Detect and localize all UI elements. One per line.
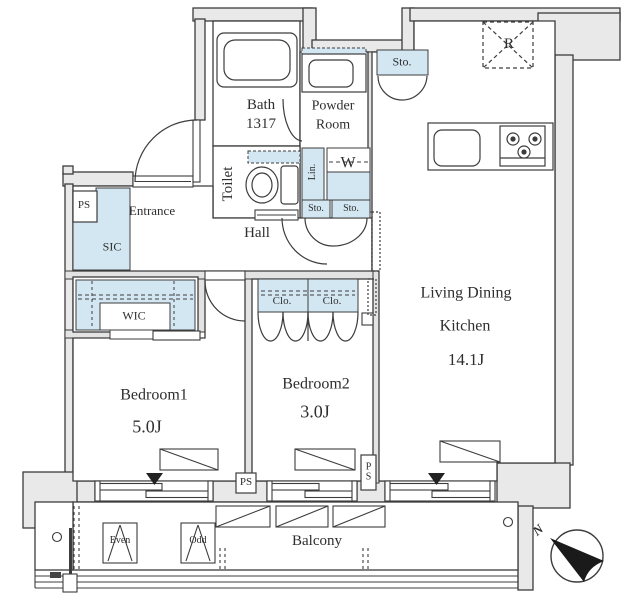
bedroom1-door-sill <box>205 271 245 280</box>
ldk-area <box>372 21 555 481</box>
compass-icon <box>550 530 604 582</box>
hatch-even-label: Even <box>110 536 131 547</box>
linen-label: Lin. <box>308 164 319 180</box>
bedroom1-size-label: 5.0J <box>132 418 162 437</box>
kitchen-counter <box>428 123 553 170</box>
drain-icon <box>504 518 513 527</box>
ldk-window <box>385 481 495 501</box>
bedroom2-label: Bedroom2 <box>282 377 350 394</box>
powder-room-label-line2: Room <box>316 119 350 134</box>
drain-icon <box>53 533 62 542</box>
stove-icon <box>500 126 545 166</box>
sic-label: SIC <box>103 241 122 254</box>
balcony-label: Balcony <box>292 534 342 550</box>
toilet-cabinet <box>248 151 300 163</box>
toilet-icon <box>246 166 298 204</box>
entrance-door-leaf <box>193 120 200 182</box>
balcony-rail <box>35 570 518 588</box>
hall-label: Hall <box>244 226 270 242</box>
bath-label: Bath <box>247 98 275 114</box>
toilet-label: Toilet <box>221 167 237 202</box>
hatch-odd-label: Odd <box>189 536 206 547</box>
wic-label: WIC <box>122 310 145 323</box>
entrance-door-arc <box>135 120 197 182</box>
ldk-label-line1: Living Dining <box>420 286 511 303</box>
sto-upper-label: Sto. <box>392 56 411 69</box>
ldk-label-line2: Kitchen <box>440 319 491 336</box>
floor-plan-drawing <box>0 0 640 613</box>
floor-plan: Bath 1317 Powder Room Toilet Entrance Ha… <box>0 0 640 613</box>
refrigerator-label: R <box>504 37 514 53</box>
clo-right-label: Clo. <box>323 296 342 308</box>
clo-left-label: Clo. <box>273 296 292 308</box>
sto-lower-right-label: Sto. <box>343 204 359 215</box>
bath-size-label: 1317 <box>246 117 276 133</box>
bedroom2-size-label: 3.0J <box>300 403 330 422</box>
bedroom1-label: Bedroom1 <box>120 388 188 405</box>
sto-lower-left-label: Sto. <box>308 204 324 215</box>
ldk-size-label: 14.1J <box>448 351 484 369</box>
bedroom2-window <box>267 481 357 501</box>
ps-bedroom-label: PS <box>240 477 252 489</box>
ps-entrance-label: PS <box>78 200 90 212</box>
kitchen-sink-icon <box>434 130 480 166</box>
washer-label: W <box>340 156 355 173</box>
wic-opening-sill <box>153 331 200 340</box>
ps-ldk-label: PS <box>363 463 374 482</box>
entrance-label: Entrance <box>129 204 175 218</box>
powder-room-label-line1: Powder <box>312 100 355 115</box>
